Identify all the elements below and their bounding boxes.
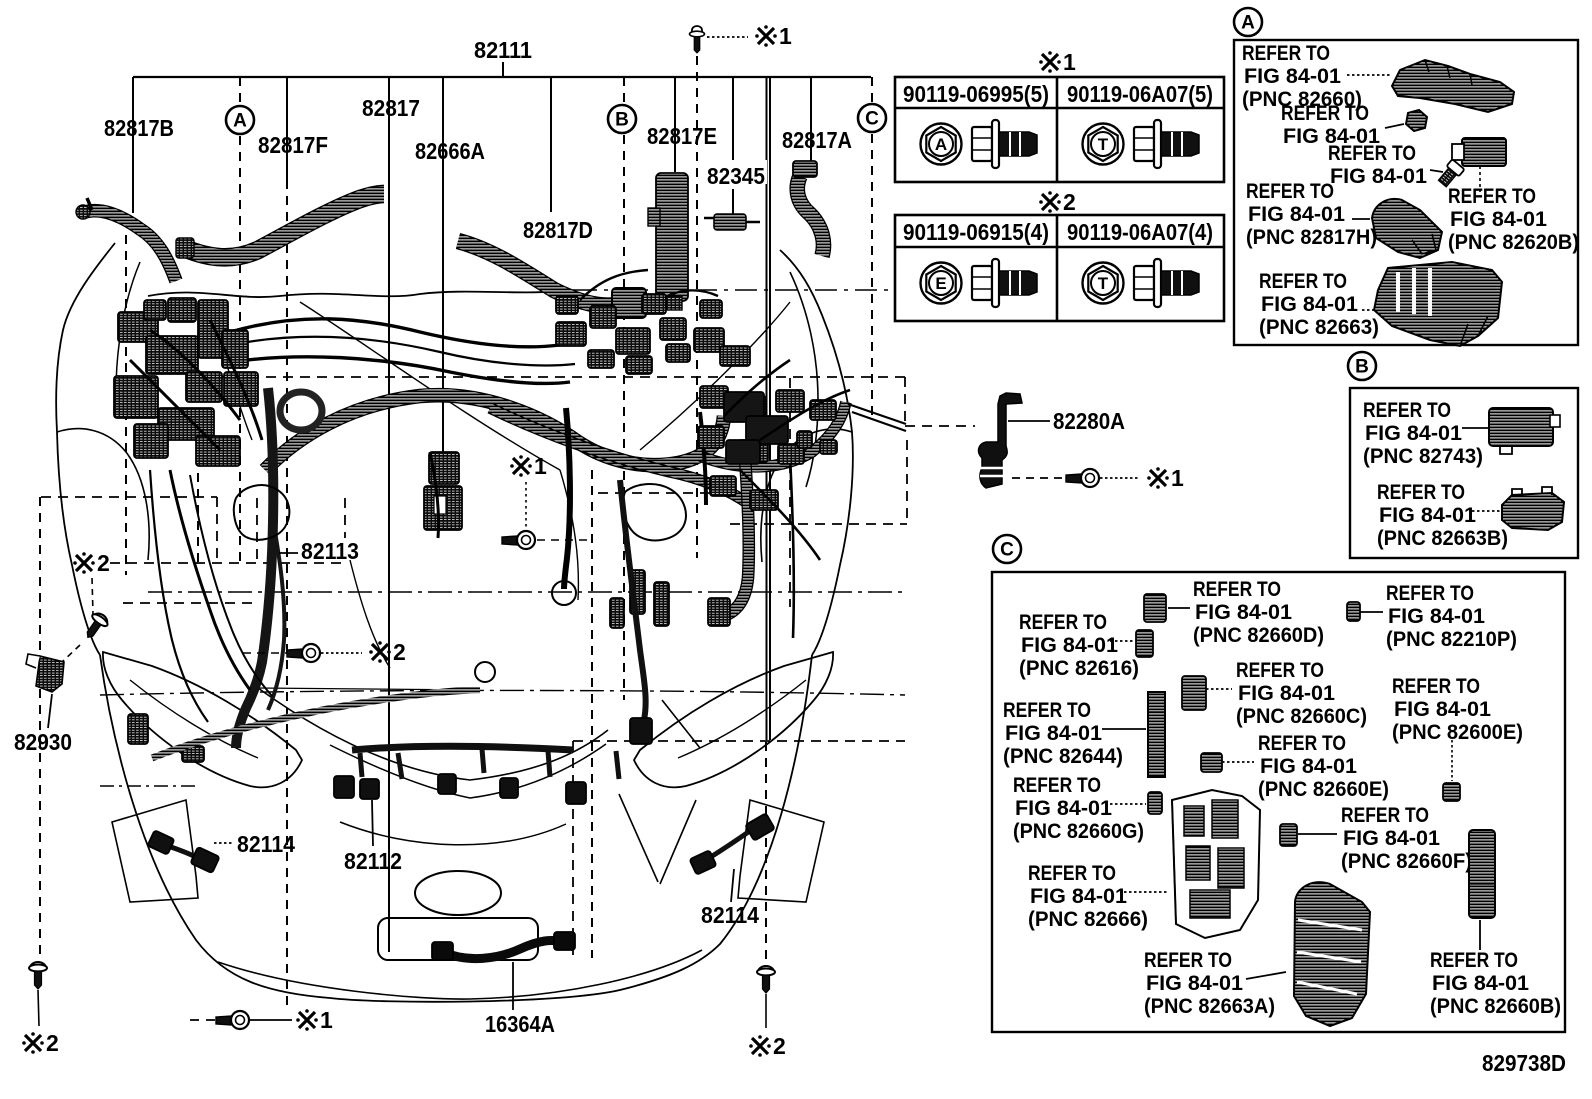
- svg-text:16364A: 16364A: [485, 1011, 555, 1037]
- svg-text:(PNC 82743): (PNC 82743): [1363, 445, 1483, 468]
- svg-text:FIG 84-01: FIG 84-01: [1238, 682, 1335, 705]
- svg-text:(PNC 82660B): (PNC 82660B): [1430, 995, 1561, 1018]
- svg-text:REFER TO: REFER TO: [1028, 862, 1116, 885]
- svg-text:82817B: 82817B: [104, 115, 174, 141]
- svg-text:REFER TO: REFER TO: [1258, 732, 1346, 755]
- svg-text:82817D: 82817D: [523, 217, 593, 243]
- svg-text:(PNC 82600E): (PNC 82600E): [1392, 721, 1523, 744]
- svg-text:T: T: [1098, 274, 1109, 293]
- svg-text:82666A: 82666A: [415, 138, 485, 164]
- svg-text:E: E: [935, 274, 946, 293]
- svg-text:82111: 82111: [474, 37, 532, 63]
- svg-text:REFER TO: REFER TO: [1430, 949, 1518, 972]
- svg-text:FIG 84-01: FIG 84-01: [1394, 698, 1491, 721]
- svg-text:FIG 84-01: FIG 84-01: [1330, 165, 1427, 188]
- svg-text:REFER TO: REFER TO: [1236, 659, 1324, 682]
- svg-text:C: C: [1000, 540, 1014, 561]
- svg-text:82112: 82112: [344, 848, 402, 874]
- svg-text:FIG 84-01: FIG 84-01: [1146, 972, 1243, 995]
- svg-text:82817E: 82817E: [647, 123, 717, 149]
- svg-text:90119-06995(5): 90119-06995(5): [903, 81, 1049, 107]
- svg-text:(PNC 82210P): (PNC 82210P): [1386, 628, 1517, 651]
- svg-text:82114: 82114: [701, 902, 759, 928]
- svg-text:829738D: 829738D: [1482, 1050, 1566, 1076]
- svg-text:2: 2: [393, 639, 406, 665]
- svg-text:82280A: 82280A: [1053, 408, 1125, 434]
- svg-text:REFER TO: REFER TO: [1363, 399, 1451, 422]
- svg-text:REFER TO: REFER TO: [1019, 611, 1107, 634]
- svg-text:FIG 84-01: FIG 84-01: [1021, 634, 1118, 657]
- svg-text:(PNC 82644): (PNC 82644): [1003, 745, 1123, 768]
- svg-text:1: 1: [779, 23, 792, 49]
- svg-text:2: 2: [97, 550, 110, 576]
- svg-text:1: 1: [320, 1007, 333, 1033]
- svg-text:90119-06A07(5): 90119-06A07(5): [1067, 81, 1213, 107]
- svg-text:FIG 84-01: FIG 84-01: [1005, 722, 1102, 745]
- svg-text:(PNC 82660D): (PNC 82660D): [1193, 624, 1324, 647]
- svg-text:FIG 84-01: FIG 84-01: [1432, 972, 1529, 995]
- svg-text:90119-06A07(4): 90119-06A07(4): [1067, 219, 1213, 245]
- svg-text:REFER TO: REFER TO: [1341, 804, 1429, 827]
- svg-text:FIG 84-01: FIG 84-01: [1030, 885, 1127, 908]
- svg-text:FIG 84-01: FIG 84-01: [1015, 797, 1112, 820]
- svg-text:A: A: [935, 135, 947, 154]
- svg-text:82817: 82817: [362, 95, 420, 121]
- svg-text:C: C: [865, 109, 879, 130]
- svg-text:REFER TO: REFER TO: [1281, 102, 1369, 125]
- svg-text:REFER TO: REFER TO: [1144, 949, 1232, 972]
- svg-text:A: A: [233, 111, 247, 132]
- svg-text:(PNC 82620B): (PNC 82620B): [1448, 231, 1579, 254]
- svg-text:REFER TO: REFER TO: [1003, 699, 1091, 722]
- svg-text:REFER TO: REFER TO: [1193, 578, 1281, 601]
- svg-text:1: 1: [1171, 465, 1184, 491]
- svg-text:82817F: 82817F: [258, 132, 328, 158]
- svg-text:2: 2: [773, 1033, 786, 1059]
- svg-text:(PNC 82660F): (PNC 82660F): [1341, 850, 1472, 873]
- svg-text:(PNC 82663B): (PNC 82663B): [1377, 527, 1508, 550]
- svg-text:90119-06915(4): 90119-06915(4): [903, 219, 1049, 245]
- svg-text:(PNC 82616): (PNC 82616): [1019, 657, 1139, 680]
- svg-text:T: T: [1098, 135, 1109, 154]
- svg-text:FIG 84-01: FIG 84-01: [1248, 203, 1345, 226]
- svg-text:REFER TO: REFER TO: [1392, 675, 1480, 698]
- svg-text:REFER TO: REFER TO: [1013, 774, 1101, 797]
- svg-text:FIG 84-01: FIG 84-01: [1195, 601, 1292, 624]
- svg-text:1: 1: [534, 453, 547, 479]
- svg-text:REFER TO: REFER TO: [1246, 180, 1334, 203]
- svg-text:82114: 82114: [237, 831, 295, 857]
- svg-text:(PNC 82663): (PNC 82663): [1259, 316, 1379, 339]
- svg-text:(PNC 82663A): (PNC 82663A): [1144, 995, 1275, 1018]
- svg-text:2: 2: [46, 1030, 59, 1056]
- svg-text:B: B: [615, 110, 629, 131]
- svg-text:(PNC 82817H): (PNC 82817H): [1246, 226, 1377, 249]
- svg-text:(PNC 82660C): (PNC 82660C): [1236, 705, 1367, 728]
- svg-text:REFER TO: REFER TO: [1377, 481, 1465, 504]
- svg-text:(PNC 82666): (PNC 82666): [1028, 908, 1148, 931]
- svg-text:FIG 84-01: FIG 84-01: [1244, 65, 1341, 88]
- svg-text:(PNC 82660E): (PNC 82660E): [1258, 778, 1389, 801]
- svg-text:82113: 82113: [301, 538, 359, 564]
- svg-text:1: 1: [1063, 49, 1076, 75]
- svg-text:82930: 82930: [14, 729, 72, 755]
- svg-text:REFER TO: REFER TO: [1386, 582, 1474, 605]
- svg-text:FIG 84-01: FIG 84-01: [1388, 605, 1485, 628]
- svg-text:REFER TO: REFER TO: [1448, 185, 1536, 208]
- svg-text:B: B: [1355, 357, 1369, 378]
- svg-text:A: A: [1241, 13, 1255, 34]
- svg-text:82345: 82345: [707, 163, 765, 189]
- svg-text:(PNC 82660G): (PNC 82660G): [1013, 820, 1144, 843]
- svg-text:FIG 84-01: FIG 84-01: [1260, 755, 1357, 778]
- svg-text:REFER TO: REFER TO: [1328, 142, 1416, 165]
- svg-text:FIG 84-01: FIG 84-01: [1379, 504, 1476, 527]
- svg-text:FIG 84-01: FIG 84-01: [1450, 208, 1547, 231]
- svg-text:FIG 84-01: FIG 84-01: [1365, 422, 1462, 445]
- svg-text:2: 2: [1063, 189, 1076, 215]
- svg-text:82817A: 82817A: [782, 127, 852, 153]
- svg-text:REFER TO: REFER TO: [1259, 270, 1347, 293]
- svg-text:FIG 84-01: FIG 84-01: [1261, 293, 1358, 316]
- svg-text:FIG 84-01: FIG 84-01: [1343, 827, 1440, 850]
- svg-text:REFER TO: REFER TO: [1242, 42, 1330, 65]
